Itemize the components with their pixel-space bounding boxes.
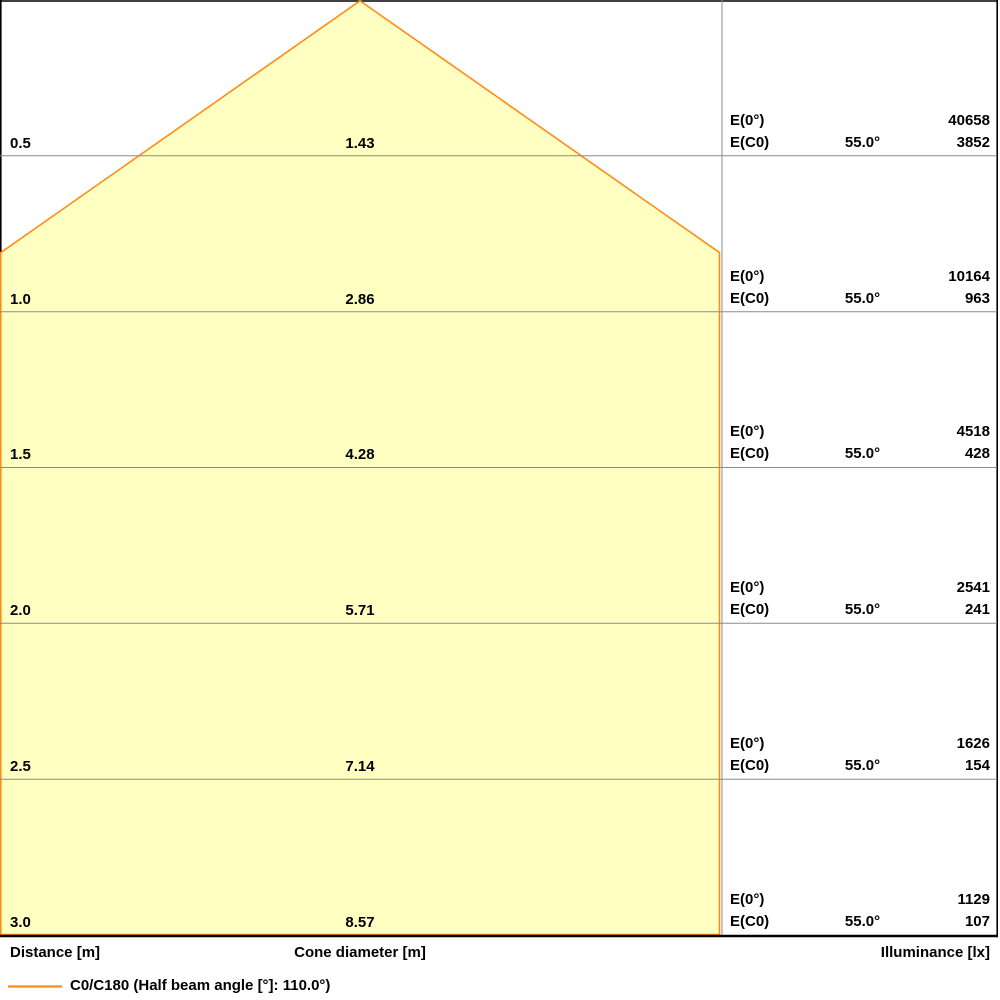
- cone-diameter-label: 2.86: [260, 291, 460, 309]
- ec0-label: E(C0): [730, 911, 815, 933]
- ec0-value: 154: [910, 755, 990, 777]
- e0-value: 1129: [910, 889, 990, 911]
- distance-label: 0.5: [10, 135, 31, 153]
- ec0-value: 107: [910, 911, 990, 933]
- ec0-line: E(C0) 55.0° 241: [730, 599, 990, 621]
- distance-label: 2.5: [10, 758, 31, 776]
- ec0-value: 428: [910, 443, 990, 465]
- illuminance-row: E(0°) 1626 E(C0) 55.0° 154: [730, 733, 990, 777]
- ec0-angle: 55.0°: [815, 443, 910, 465]
- cone-diameter-label: 8.57: [260, 914, 460, 932]
- illuminance-row: E(0°) 40658 E(C0) 55.0° 3852: [730, 110, 990, 154]
- ec0-line: E(C0) 55.0° 963: [730, 288, 990, 310]
- ec0-label: E(C0): [730, 755, 815, 777]
- e0-angle: [815, 110, 910, 132]
- e0-value: 40658: [910, 110, 990, 132]
- cone-diameter-label: 1.43: [260, 135, 460, 153]
- ec0-value: 3852: [910, 132, 990, 154]
- illuminance-row: E(0°) 4518 E(C0) 55.0° 428: [730, 421, 990, 465]
- distance-label: 1.0: [10, 291, 31, 309]
- e0-line: E(0°) 40658: [730, 110, 990, 132]
- ec0-angle: 55.0°: [815, 288, 910, 310]
- e0-label: E(0°): [730, 421, 815, 443]
- distance-label: 1.5: [10, 446, 31, 464]
- e0-value: 4518: [910, 421, 990, 443]
- light-cone-diagram: 0.5 1.43 E(0°) 40658 E(C0) 55.0° 3852 1.…: [0, 0, 1000, 1000]
- e0-line: E(0°) 4518: [730, 421, 990, 443]
- cone-diameter-label: 7.14: [260, 758, 460, 776]
- distance-axis-title: Distance [m]: [10, 944, 100, 962]
- ec0-angle: 55.0°: [815, 132, 910, 154]
- e0-line: E(0°) 1129: [730, 889, 990, 911]
- e0-label: E(0°): [730, 266, 815, 288]
- e0-angle: [815, 889, 910, 911]
- illuminance-axis-title: Illuminance [lx]: [750, 944, 990, 962]
- ec0-line: E(C0) 55.0° 3852: [730, 132, 990, 154]
- cone-diameter-axis-title: Cone diameter [m]: [210, 944, 510, 962]
- e0-label: E(0°): [730, 110, 815, 132]
- e0-value: 1626: [910, 733, 990, 755]
- e0-angle: [815, 733, 910, 755]
- ec0-angle: 55.0°: [815, 755, 910, 777]
- e0-label: E(0°): [730, 733, 815, 755]
- illuminance-row: E(0°) 2541 E(C0) 55.0° 241: [730, 577, 990, 621]
- e0-label: E(0°): [730, 889, 815, 911]
- ec0-label: E(C0): [730, 443, 815, 465]
- ec0-label: E(C0): [730, 599, 815, 621]
- distance-label: 3.0: [10, 914, 31, 932]
- e0-angle: [815, 421, 910, 443]
- e0-line: E(0°) 10164: [730, 266, 990, 288]
- illuminance-row: E(0°) 1129 E(C0) 55.0° 107: [730, 889, 990, 933]
- e0-value: 2541: [910, 577, 990, 599]
- ec0-value: 241: [910, 599, 990, 621]
- e0-angle: [815, 577, 910, 599]
- ec0-label: E(C0): [730, 132, 815, 154]
- ec0-angle: 55.0°: [815, 599, 910, 621]
- legend-label: C0/C180 (Half beam angle [°]: 110.0°): [70, 977, 330, 995]
- ec0-line: E(C0) 55.0° 154: [730, 755, 990, 777]
- e0-line: E(0°) 1626: [730, 733, 990, 755]
- e0-angle: [815, 266, 910, 288]
- legend: C0/C180 (Half beam angle [°]: 110.0°): [8, 977, 330, 995]
- ec0-angle: 55.0°: [815, 911, 910, 933]
- ec0-line: E(C0) 55.0° 428: [730, 443, 990, 465]
- ec0-line: E(C0) 55.0° 107: [730, 911, 990, 933]
- legend-line-swatch: [8, 978, 62, 994]
- ec0-value: 963: [910, 288, 990, 310]
- e0-label: E(0°): [730, 577, 815, 599]
- illuminance-row: E(0°) 10164 E(C0) 55.0° 963: [730, 266, 990, 310]
- cone-diameter-label: 5.71: [260, 602, 460, 620]
- cone-diameter-label: 4.28: [260, 446, 460, 464]
- distance-label: 2.0: [10, 602, 31, 620]
- ec0-label: E(C0): [730, 288, 815, 310]
- e0-value: 10164: [910, 266, 990, 288]
- e0-line: E(0°) 2541: [730, 577, 990, 599]
